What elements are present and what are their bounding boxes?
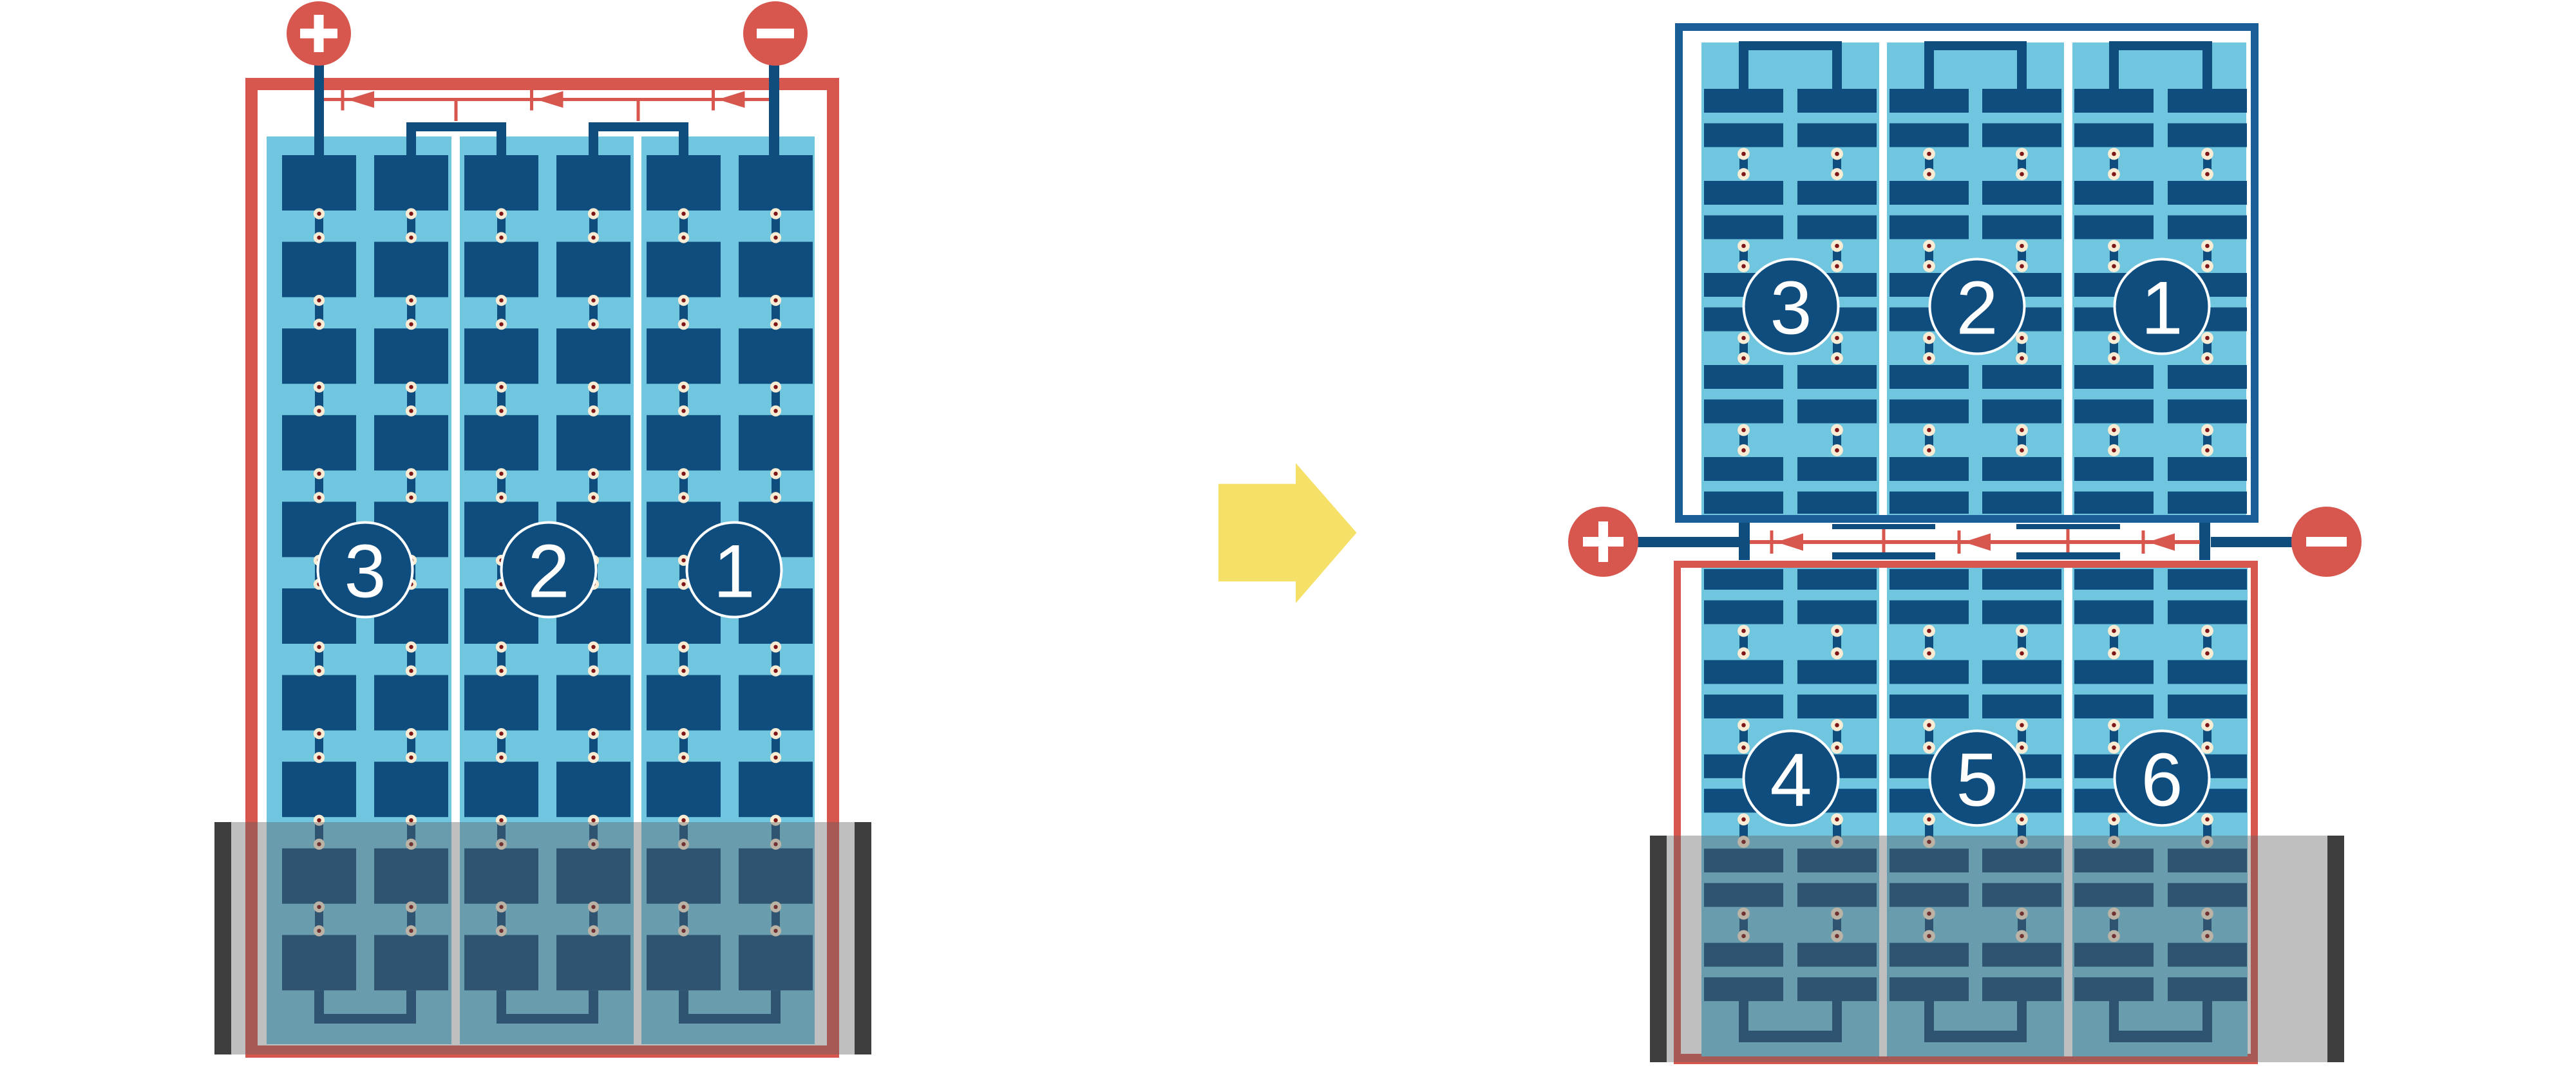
svg-text:1: 1 <box>2141 266 2183 350</box>
svg-text:2: 2 <box>1956 266 1998 350</box>
svg-text:3: 3 <box>1770 266 1812 350</box>
svg-text:6: 6 <box>2141 737 2183 821</box>
svg-text:2: 2 <box>527 529 569 614</box>
svg-text:1: 1 <box>713 529 755 614</box>
svg-text:4: 4 <box>1770 737 1812 821</box>
svg-text:3: 3 <box>344 529 386 614</box>
svg-text:5: 5 <box>1956 737 1998 821</box>
